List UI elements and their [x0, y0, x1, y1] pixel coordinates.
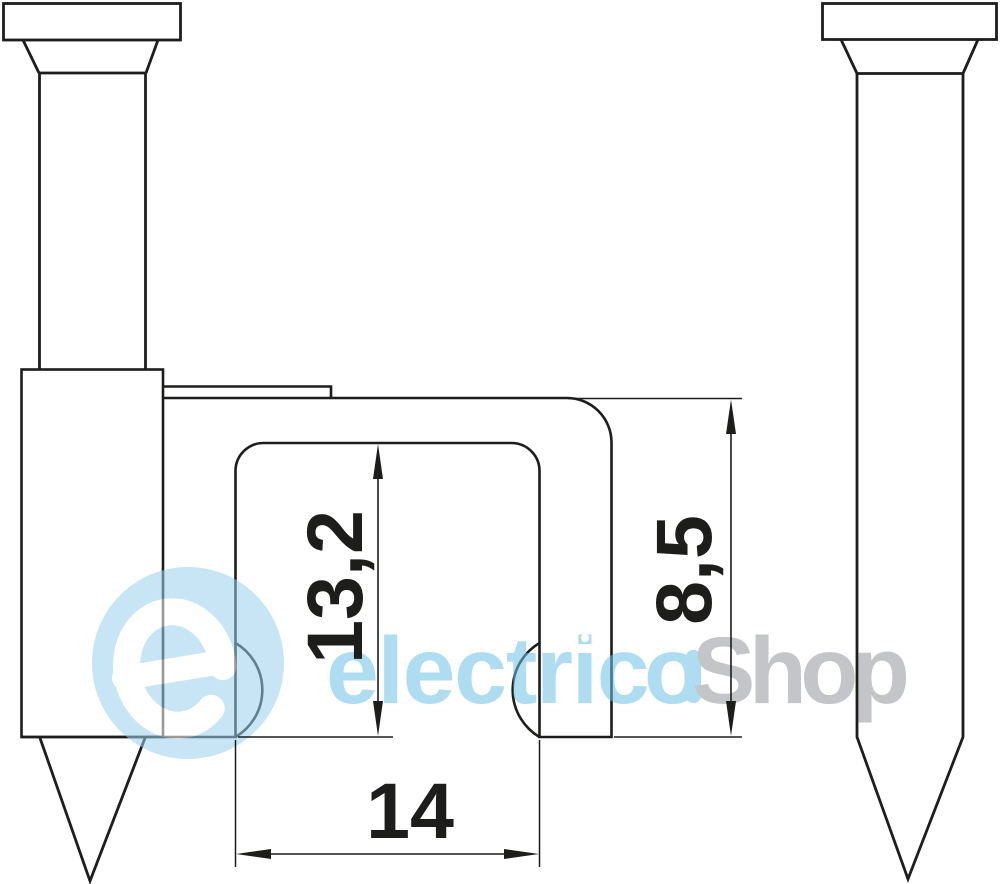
svg-text:8,5: 8,5 [639, 515, 728, 625]
svg-text:Shop: Shop [692, 618, 907, 724]
svg-text:14: 14 [366, 766, 454, 855]
svg-text:13,2: 13,2 [290, 510, 379, 664]
